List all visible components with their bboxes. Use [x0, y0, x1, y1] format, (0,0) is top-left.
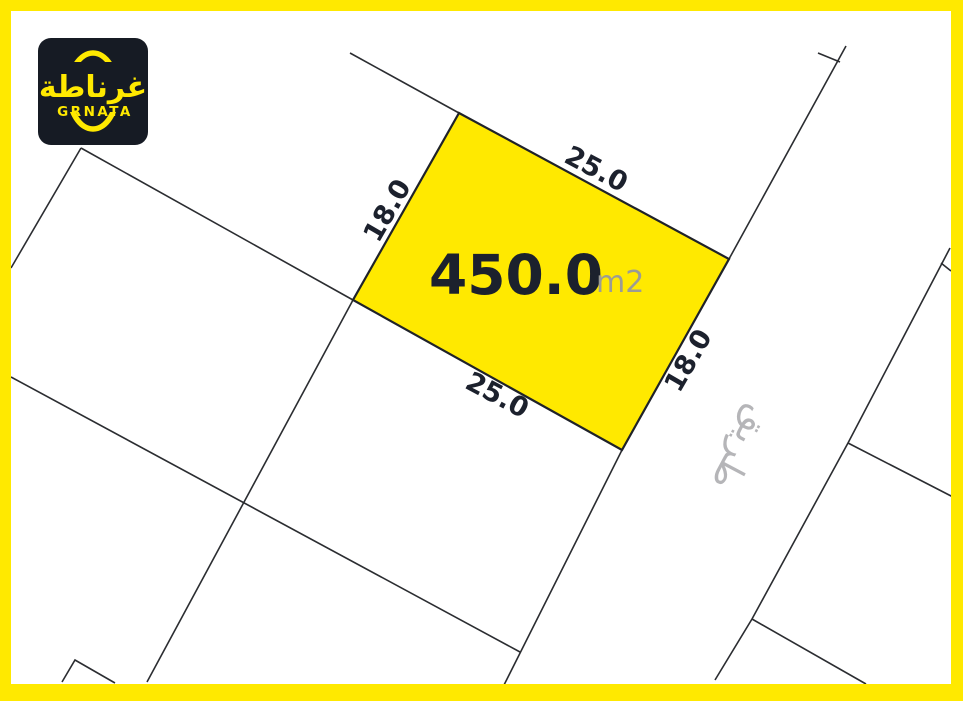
frame-border-top — [0, 0, 963, 11]
plot-map-canvas: 450.0 m2 25.0 25.0 18.0 18.0 طريق غرناطة… — [0, 0, 963, 701]
plot-map-image: 450.0 m2 25.0 25.0 18.0 18.0 طريق غرناطة… — [0, 0, 963, 701]
frame-border-bottom — [0, 684, 963, 701]
logo-arabic-wordmark: غرناطة — [39, 70, 147, 105]
logo-latin-wordmark: GRNATA — [57, 104, 133, 120]
grnata-logo: غرناطة GRNATA — [38, 38, 148, 145]
frame-border-right — [951, 0, 963, 701]
frame-border-left — [0, 0, 11, 701]
plot-area-value: 450.0 — [429, 243, 603, 307]
plot-area-unit: m2 — [596, 265, 644, 300]
